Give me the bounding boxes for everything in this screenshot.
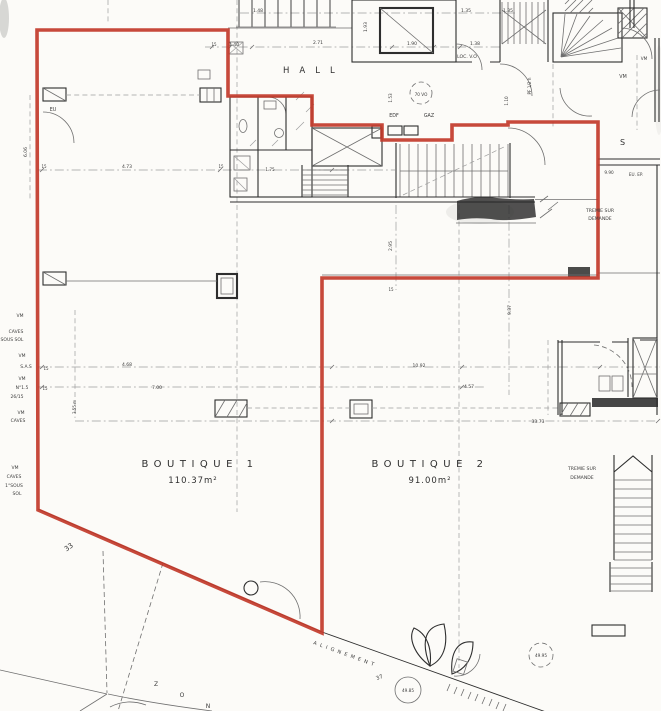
boutique2-name: BOUTIQUE 2 — [372, 459, 489, 470]
dim-label: Z — [154, 681, 158, 688]
dim-label: EU — [50, 107, 57, 113]
loc-vo-label: LOC. V.O — [457, 54, 477, 60]
dim-label: 9.37 — [507, 305, 513, 315]
wall-bar — [592, 398, 658, 407]
dim-label: 2.95 — [388, 241, 394, 251]
sa-label: S A — [620, 138, 661, 147]
boutique1-name: BOUTIQUE 1 — [142, 459, 259, 470]
dim-label: 6.06 — [23, 147, 29, 157]
dim-label: 2.71 — [313, 40, 323, 46]
hall-label: HALL — [283, 66, 345, 76]
dim-label: 49.85 — [402, 688, 414, 693]
hatched-blob — [457, 197, 536, 220]
dim-label: 15 — [218, 164, 224, 169]
dim-label: 1.53 — [388, 93, 393, 103]
dim-label: 15 — [388, 287, 394, 292]
dim-label: VM — [17, 313, 24, 319]
dim-label: 10.92 — [413, 363, 426, 369]
dim-label: 15 — [43, 366, 49, 371]
dim-label: 1.48 — [253, 8, 263, 14]
dim-label: 15 — [41, 164, 47, 169]
dim-label: 15 — [211, 42, 217, 47]
dim-label: GAZ — [424, 113, 435, 119]
dim-label: 1.75 — [265, 167, 275, 172]
dim-label: CAVES — [7, 474, 22, 480]
dim-label: EU. EP. — [629, 172, 643, 177]
dim-label: 9.90 — [604, 170, 614, 175]
dim-label: 1.38 — [470, 41, 480, 47]
floor-plan-canvas: HALL S A LOC. V.O BOUTIQUE 1 110.37m² BO… — [0, 0, 661, 711]
dim-label: VM — [12, 465, 19, 471]
dim-label: VM — [619, 74, 626, 80]
dim-label: 15 — [42, 386, 48, 391]
dim-label: VM — [19, 376, 26, 382]
dim-label: 1.35 — [503, 8, 513, 14]
dim-label: 1.10 — [504, 96, 509, 106]
dim-label: 70 VO — [415, 92, 428, 97]
dim-label: S.A.S — [20, 364, 32, 370]
dim-label: SOUS SOL — [1, 337, 24, 343]
dim-label: 49.95 — [535, 653, 547, 658]
tremie-center-line2: DEMANDE — [588, 216, 612, 222]
dim-label: 1.93 — [363, 22, 369, 32]
boutique2-area: 91.00m² — [408, 476, 451, 486]
dim-label: 4.68 — [122, 362, 132, 368]
dim-label: CAVES — [11, 418, 26, 424]
dim-label: SOL — [13, 491, 22, 497]
dim-label: 33.73 — [532, 419, 545, 425]
dim-label: 4.73 — [122, 164, 132, 170]
floor-plan: HALL S A LOC. V.O BOUTIQUE 1 110.37m² BO… — [0, 0, 661, 711]
dim-label: VM — [641, 56, 648, 61]
dim-label: EDF — [389, 113, 399, 119]
dim-label: 3.55 m — [72, 400, 77, 414]
dim-label: N°1.5 — [16, 385, 29, 391]
tremie-center-line1: TREMIE SUR — [585, 208, 615, 214]
dim-label: PF 1/2 h — [527, 77, 532, 94]
dim-label: VM — [19, 353, 26, 359]
dim-label: 4.57 — [464, 384, 474, 390]
dim-label: CAVES — [9, 329, 24, 335]
tremie-right-line1: TREMIE SUR — [567, 466, 597, 472]
dim-label: 1.40 — [229, 42, 239, 48]
dim-label: N — [206, 703, 211, 710]
dim-label: 26/15 — [11, 394, 24, 400]
dim-label: 1.90 — [407, 41, 417, 47]
dim-label: 1°SOUS — [5, 483, 23, 489]
dim-label: O — [180, 692, 185, 699]
dim-label: VM — [18, 410, 25, 416]
dim-label: 1.35 — [461, 8, 471, 14]
boutique1-area: 110.37m² — [168, 476, 217, 486]
dim-label: 7.00 — [152, 385, 162, 391]
tremie-right-line2: DEMANDE — [570, 475, 594, 481]
